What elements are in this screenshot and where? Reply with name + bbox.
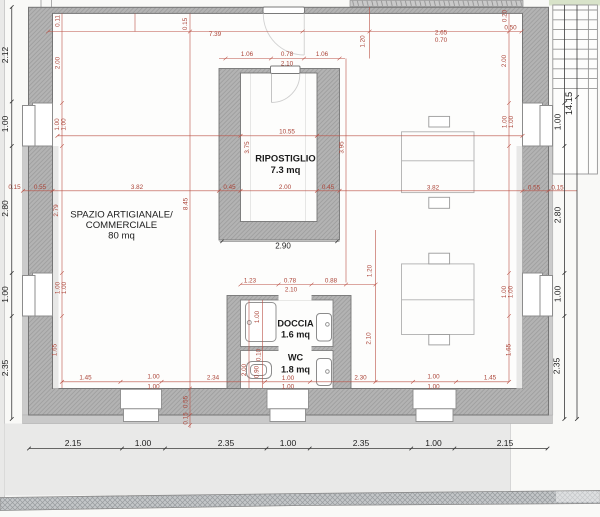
svg-text:0.70: 0.70 bbox=[435, 37, 448, 44]
svg-text:1.20: 1.20 bbox=[360, 35, 367, 48]
svg-text:80 mq: 80 mq bbox=[108, 231, 135, 242]
svg-text:0.10: 0.10 bbox=[256, 348, 263, 361]
svg-text:1.00: 1.00 bbox=[553, 285, 563, 302]
svg-text:1.00: 1.00 bbox=[0, 286, 10, 303]
svg-text:1.00: 1.00 bbox=[427, 374, 440, 381]
svg-text:2.35: 2.35 bbox=[552, 357, 562, 374]
svg-text:1.00: 1.00 bbox=[254, 310, 261, 323]
svg-text:2.35: 2.35 bbox=[353, 438, 370, 448]
svg-text:0.55: 0.55 bbox=[34, 184, 47, 191]
svg-text:2.00: 2.00 bbox=[501, 54, 508, 67]
svg-text:0.15: 0.15 bbox=[8, 184, 21, 191]
svg-text:1.8 mq: 1.8 mq bbox=[281, 365, 310, 375]
svg-text:0.78: 0.78 bbox=[284, 278, 297, 285]
svg-text:1.00: 1.00 bbox=[61, 281, 68, 294]
svg-text:1.00: 1.00 bbox=[553, 113, 563, 130]
svg-text:0.20: 0.20 bbox=[502, 9, 509, 22]
svg-text:2.30: 2.30 bbox=[354, 375, 367, 382]
svg-text:0.45: 0.45 bbox=[322, 184, 335, 191]
svg-text:2.35: 2.35 bbox=[218, 438, 235, 448]
svg-text:2.00: 2.00 bbox=[279, 184, 292, 191]
svg-text:0.55: 0.55 bbox=[528, 185, 541, 192]
svg-text:1.45: 1.45 bbox=[484, 375, 497, 382]
svg-text:1.23: 1.23 bbox=[244, 278, 257, 285]
svg-text:1.00: 1.00 bbox=[280, 438, 297, 448]
svg-text:3.82: 3.82 bbox=[131, 184, 144, 191]
svg-text:1.00: 1.00 bbox=[0, 115, 10, 132]
svg-text:1.00: 1.00 bbox=[147, 374, 160, 381]
svg-text:1.65: 1.65 bbox=[506, 343, 513, 356]
svg-text:2.80: 2.80 bbox=[553, 206, 563, 223]
svg-text:8.45: 8.45 bbox=[183, 197, 190, 210]
svg-text:2.65: 2.65 bbox=[435, 30, 448, 37]
svg-text:1.00: 1.00 bbox=[61, 118, 68, 131]
svg-text:0.55: 0.55 bbox=[183, 395, 190, 408]
svg-text:1.06: 1.06 bbox=[316, 51, 329, 58]
svg-text:2.15: 2.15 bbox=[65, 438, 82, 448]
svg-text:7.39: 7.39 bbox=[209, 31, 222, 38]
svg-text:1.6 mq: 1.6 mq bbox=[281, 330, 310, 340]
svg-text:0.15: 0.15 bbox=[182, 17, 189, 30]
svg-text:1.00: 1.00 bbox=[425, 438, 442, 448]
svg-text:2.10: 2.10 bbox=[285, 287, 298, 294]
svg-text:SPAZIO ARTIGIANALE/: SPAZIO ARTIGIANALE/ bbox=[70, 210, 173, 221]
svg-text:2.90: 2.90 bbox=[275, 242, 291, 251]
svg-text:0.50: 0.50 bbox=[504, 25, 517, 32]
svg-text:2.15: 2.15 bbox=[497, 438, 514, 448]
svg-text:0.90: 0.90 bbox=[254, 365, 261, 378]
svg-text:2.34: 2.34 bbox=[207, 375, 220, 382]
svg-text:2.12: 2.12 bbox=[0, 46, 10, 63]
svg-text:1.00: 1.00 bbox=[135, 438, 152, 448]
svg-text:1.06: 1.06 bbox=[241, 51, 254, 58]
svg-text:1.00: 1.00 bbox=[147, 384, 160, 391]
svg-text:2.80: 2.80 bbox=[0, 200, 10, 217]
svg-text:14.15: 14.15 bbox=[564, 92, 574, 115]
svg-text:1.45: 1.45 bbox=[79, 375, 92, 382]
svg-text:COMMERCIALE: COMMERCIALE bbox=[86, 220, 157, 231]
svg-text:10.55: 10.55 bbox=[279, 129, 295, 136]
svg-text:7.3 mq: 7.3 mq bbox=[271, 164, 301, 175]
svg-text:1.00: 1.00 bbox=[282, 375, 295, 382]
svg-text:0.15: 0.15 bbox=[183, 412, 190, 425]
svg-text:2.00: 2.00 bbox=[55, 56, 62, 69]
svg-text:0.11: 0.11 bbox=[55, 15, 62, 27]
svg-text:1.00: 1.00 bbox=[508, 115, 515, 128]
svg-text:2.00: 2.00 bbox=[241, 363, 248, 376]
svg-text:3.75: 3.75 bbox=[244, 141, 251, 154]
svg-text:2.10: 2.10 bbox=[366, 332, 373, 345]
svg-text:1.00: 1.00 bbox=[427, 384, 440, 391]
svg-text:1.65: 1.65 bbox=[52, 343, 59, 356]
svg-text:3.82: 3.82 bbox=[427, 185, 440, 192]
svg-text:1.00: 1.00 bbox=[282, 384, 295, 391]
svg-text:0.45: 0.45 bbox=[223, 184, 236, 191]
svg-text:0.78: 0.78 bbox=[281, 51, 294, 58]
svg-text:0.88: 0.88 bbox=[325, 278, 338, 285]
svg-text:2.10: 2.10 bbox=[281, 61, 294, 68]
svg-text:2.79: 2.79 bbox=[53, 204, 60, 217]
svg-text:RIPOSTIGLIO: RIPOSTIGLIO bbox=[255, 153, 315, 164]
svg-text:2.35: 2.35 bbox=[0, 359, 10, 376]
svg-text:1.20: 1.20 bbox=[367, 264, 374, 277]
svg-text:0.15: 0.15 bbox=[551, 185, 564, 192]
svg-text:WC: WC bbox=[288, 353, 304, 363]
svg-text:1.00: 1.00 bbox=[508, 285, 515, 298]
svg-text:3.95: 3.95 bbox=[339, 141, 346, 154]
svg-text:DOCCIA: DOCCIA bbox=[277, 319, 314, 329]
